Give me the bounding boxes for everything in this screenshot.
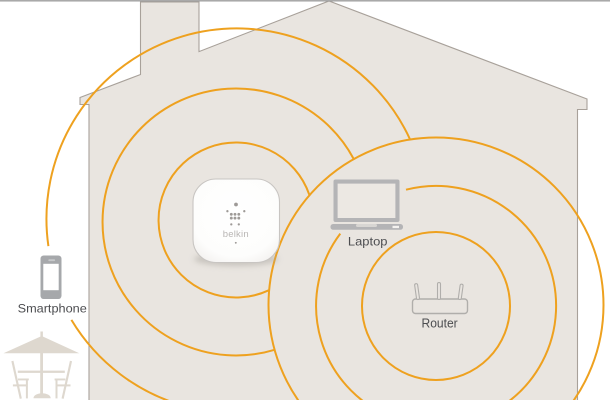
svg-text:belkin: belkin	[223, 229, 249, 240]
svg-text:Laptop: Laptop	[348, 234, 388, 248]
svg-text:Smartphone: Smartphone	[18, 302, 87, 316]
svg-text:Router: Router	[422, 316, 459, 331]
